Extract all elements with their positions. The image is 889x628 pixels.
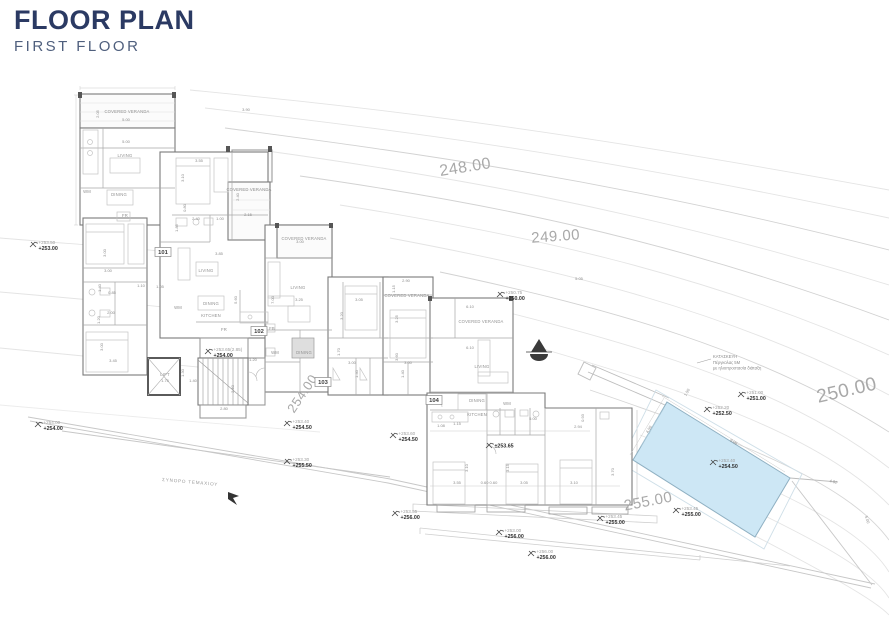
spot-elevation-existing: +250.75 (506, 290, 523, 295)
spot-elevation-existing: +253.40 (293, 419, 310, 424)
dimension-label: 7.00 (270, 295, 275, 304)
boundary-note-label: ΣΥΝΟΡΟ ΤΕΜΑΧΙΟΥ (162, 477, 218, 487)
spot-elevation-proposed: ±253.65 (495, 444, 514, 450)
pool (620, 390, 802, 549)
pool-note-leader (697, 359, 711, 363)
dimension-label: 6.10 (466, 304, 475, 309)
dimension-label: 2.05 (95, 109, 100, 118)
dimension-label: 3.85 (215, 251, 224, 256)
dimension-label: 5.00 (529, 416, 538, 421)
dimension-label: 0.85 (108, 290, 117, 295)
room-label: DINING (296, 350, 312, 355)
dimension-label: 3.60 (394, 352, 399, 361)
dimension-label: 5.00 (864, 515, 871, 525)
page-subtitle: FIRST FLOOR (14, 38, 195, 55)
dimension-label: 1.30 (180, 368, 185, 377)
spot-elevation-marker-icon (390, 433, 398, 438)
dimension-label: 3.70 (610, 467, 615, 476)
dimension-label: 3.20 (339, 311, 344, 320)
spot-elevation-marker-icon (704, 407, 712, 412)
spot-elevation-marker-icon (673, 508, 681, 513)
dimension-label: 1.40 (97, 283, 102, 292)
room-label: LIVING (475, 364, 490, 369)
room-label: FR (122, 213, 128, 218)
room-label: WM (503, 401, 511, 406)
spot-elevation-proposed: +250.00 (506, 296, 525, 302)
pool-note-line: Πέργκολας 5Μ (713, 360, 741, 365)
dimension-label: 3.90 (242, 107, 251, 112)
room-label: DINING (111, 192, 127, 197)
contour-elevation-label: 250.00 (815, 374, 879, 408)
spot-elevation-proposed: +256.00 (401, 515, 420, 521)
spot-elevation-existing: +254.00 (44, 420, 61, 425)
room-label: COVERED VERANDA (458, 319, 503, 324)
dimension-label: 1.75 (161, 378, 170, 383)
spot-elevation-proposed: +254.00 (214, 353, 233, 359)
dimension-label: 5.00 (122, 117, 131, 122)
tree-symbol-icon (228, 492, 239, 505)
spot-elevation-marker-icon (738, 392, 746, 397)
floor-plan-page: FLOOR PLAN FIRST FLOOR (0, 0, 889, 628)
room-label: LIVING (199, 268, 214, 273)
dimension-label: 3.15 (505, 463, 510, 472)
contour-elevation-label: 249.00 (531, 226, 581, 246)
room-label: COVERED VERANDA (281, 236, 326, 241)
room-label: WM (174, 305, 182, 310)
dimension-label: 3.10 (180, 173, 185, 182)
room-label: DINING (469, 398, 485, 403)
dimension-label: 4.92 (829, 478, 839, 485)
dimension-label: 3.00 (404, 360, 413, 365)
site-plan-svg: 248.00249.00250.00254.00255.00 COVERED V… (0, 0, 889, 628)
dimension-label: 2.15 (244, 212, 253, 217)
room-label: KITCHEN (467, 412, 487, 417)
dimension-label: 3.25 (394, 314, 399, 323)
room-label: WM (271, 350, 279, 355)
dimension-label: 3.00 (296, 239, 305, 244)
spot-elevation-proposed: +252.50 (713, 411, 732, 417)
unit-number-label: 103 (318, 380, 328, 386)
dimension-label: 1.08 (437, 423, 446, 428)
dimension-label: 2.40 (235, 192, 240, 201)
spot-elevation-marker-icon (30, 242, 38, 247)
dimension-label: 1.15 (391, 284, 396, 293)
page-header: FLOOR PLAN FIRST FLOOR (14, 6, 195, 55)
spot-elevation-proposed: +253.00 (39, 246, 58, 252)
dimension-label: 1.40 (189, 378, 198, 383)
dimension-label: 3.10 (464, 463, 469, 472)
spot-elevation-existing: +253.60 (399, 431, 416, 436)
dimension-label: 0.60 0.60 (481, 480, 498, 485)
dimension-label: 1.20 (249, 357, 258, 362)
room-label: COVERED VERANDA (226, 187, 271, 192)
dimension-label: 1.20 (96, 315, 101, 324)
dimension-label: 2.94 (574, 424, 583, 429)
spot-elevation-marker-icon (528, 551, 536, 556)
dimension-label: 5.00 (122, 139, 131, 144)
spot-elevation-proposed: +254.00 (44, 426, 63, 432)
spot-elevation-proposed: +255.50 (293, 463, 312, 469)
dimension-label: 2.90 (402, 278, 411, 283)
dimension-label: 5.05 (575, 276, 584, 281)
spot-elevation-existing: +253.30 (293, 457, 310, 462)
dimension-label: 3.55 (195, 158, 204, 163)
dimension-label: 1.70 (336, 347, 341, 356)
dimension-label: 3.00 (102, 248, 107, 257)
unit-number-label: 102 (254, 329, 264, 335)
spot-elevation-existing: +253.00 (505, 528, 522, 533)
spot-elevation-proposed: +251.00 (747, 396, 766, 402)
spot-elevation-marker-icon (392, 511, 400, 516)
dimension-label: 1.10 (137, 283, 146, 288)
dimension-label: 1.00 (216, 216, 225, 221)
dimension-label: 3.45 (109, 358, 118, 363)
spot-elevation-existing: +253.55 (401, 509, 418, 514)
unit-number-label: 101 (158, 250, 168, 256)
spot-elevation-marker-icon (497, 292, 505, 297)
room-label: COVERED VERANDA (104, 109, 149, 114)
spot-elevation-existing: +251.00 (747, 390, 764, 395)
room-label: FR (221, 327, 227, 332)
spot-elevation-existing: +253.65(2.85) (214, 347, 243, 352)
dimension-label: 6.10 (466, 345, 475, 350)
room-label: FB (269, 326, 275, 331)
dimension-label: 2.80 (220, 406, 229, 411)
spot-elevation-existing: +253.40 (719, 458, 736, 463)
spot-elevation-proposed: +254.50 (399, 437, 418, 443)
room-label: LIVING (291, 285, 306, 290)
dimension-label: 3.05 (520, 480, 529, 485)
spot-elevation-existing: +253.45 (606, 514, 623, 519)
dimension-label: 2.40 (192, 216, 201, 221)
dimension-label: 0.93 (580, 413, 585, 422)
room-label: WM (83, 189, 91, 194)
room-label: LIVING (118, 153, 133, 158)
pool-note-line: ΚΑΤΑΣΚΕΥΗ (713, 354, 737, 359)
dimension-label: 3.55 (453, 480, 462, 485)
dimension-label: 1.15 (453, 421, 462, 426)
dimension-label: 3.25 (295, 297, 304, 302)
dimension-label: 3.00 (104, 268, 113, 273)
spot-elevation-existing: +253.50 (39, 240, 56, 245)
spot-elevation-proposed: +254.50 (293, 425, 312, 431)
dimension-label: 1.85 (174, 223, 179, 232)
spot-elevation-proposed: +254.50 (719, 464, 738, 470)
spot-elevation-existing: +256.00 (537, 549, 554, 554)
spot-elevation-marker-icon (284, 421, 292, 426)
dimension-label: 5.60 (233, 295, 238, 304)
spot-elevation-existing: +252.20 (713, 405, 730, 410)
room-label: KITCHEN (201, 313, 221, 318)
page-title: FLOOR PLAN (14, 6, 195, 36)
dimension-label: 0.80 (182, 203, 187, 212)
dimension-label: 2.50 (230, 384, 235, 393)
dimension-label: 3.00 (348, 360, 357, 365)
pool-note-line: με ηλιοπροστασία διάταξη (713, 366, 762, 371)
spot-elevation-proposed: +256.00 (537, 555, 556, 561)
dimension-label: 1.40 (400, 369, 405, 378)
unit-number-label: 104 (429, 398, 439, 404)
spot-elevation-proposed: +255.00 (682, 512, 701, 518)
dimension-label: 3.10 (570, 480, 579, 485)
dimension-label: 1.40 (354, 369, 359, 378)
spot-elevation-proposed: +256.00 (505, 534, 524, 540)
spot-elevation-existing: +253.45 (682, 506, 699, 511)
room-label: DINING (203, 301, 219, 306)
dimension-label: 1.05 (156, 284, 165, 289)
dimension-label: 3.05 (355, 297, 364, 302)
dimension-label: 2.00 (107, 310, 116, 315)
room-label: LIFT (160, 372, 170, 377)
spot-elevation-marker-icon (35, 422, 43, 427)
dimension-label: 3.00 (99, 342, 104, 351)
spot-elevation-proposed: +255.00 (606, 520, 625, 526)
spot-elevation-marker-icon (496, 530, 504, 535)
